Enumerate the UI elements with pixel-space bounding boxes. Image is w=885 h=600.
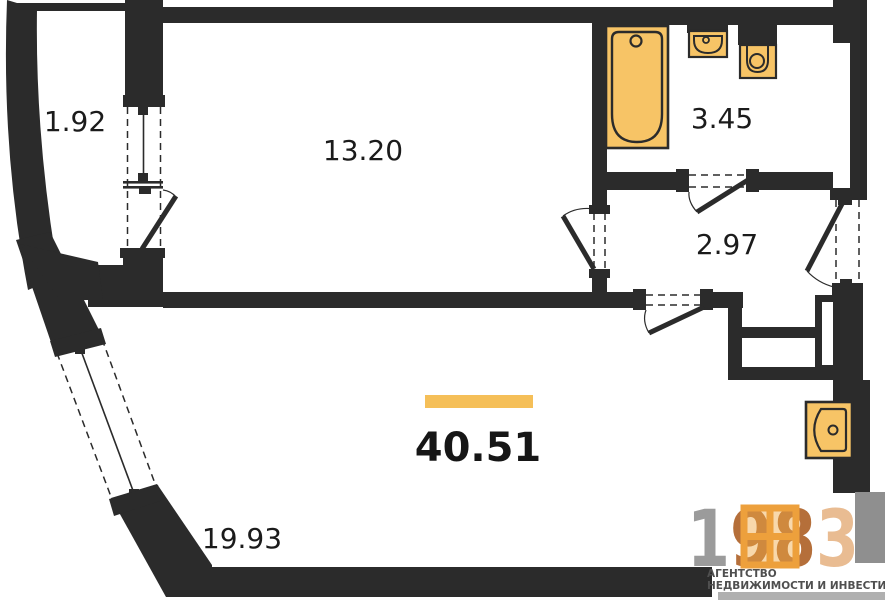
logo-window-icon — [744, 508, 796, 565]
bathroom-door — [689, 175, 748, 212]
balcony-window-door — [120, 107, 176, 258]
door-leaf — [142, 196, 176, 249]
wall-segment — [728, 367, 833, 380]
bathroom-area-label: 3.45 — [691, 102, 753, 135]
door-leaf — [697, 180, 748, 212]
wall-segment — [163, 7, 593, 23]
floor-plan-page: 1.92 13.20 3.45 2.97 19.93 40.51 1983 АГ… — [0, 0, 885, 600]
door-leaf — [563, 216, 594, 269]
wall-segment — [163, 292, 633, 308]
accent-bar — [425, 395, 533, 408]
wall-segment — [850, 25, 867, 190]
door-leaf — [807, 202, 843, 271]
logo-tagline-2: НЕДВИЖИМОСТИ И ИНВЕСТИЦИЙ — [707, 579, 885, 592]
bathroom-sink-icon — [687, 24, 728, 57]
wall-segment — [676, 169, 689, 192]
hallway-area-label: 2.97 — [696, 228, 758, 261]
wall-segment — [633, 289, 646, 310]
total-area: 40.51 — [415, 395, 542, 471]
door-swing-arc — [645, 310, 649, 333]
balcony-area-label: 1.92 — [44, 105, 106, 138]
total-area-label: 40.51 — [415, 425, 542, 471]
bathtub-icon — [606, 26, 668, 148]
wall-segment — [593, 172, 678, 190]
door-swing-arc — [807, 271, 834, 287]
agency-logo: 1983 АГЕНТСТВО НЕДВИЖИМОСТИ И ИНВЕСТИЦИЙ — [687, 492, 885, 600]
bedroom-area-label: 13.20 — [323, 134, 403, 167]
wall-segment — [840, 279, 852, 285]
living-room-area-label: 19.93 — [202, 522, 282, 555]
shaft-slot — [822, 302, 833, 365]
door-leaf — [649, 307, 704, 333]
wall-segment — [123, 95, 165, 107]
living-room-door — [645, 295, 704, 333]
wall-segment — [713, 292, 743, 308]
door-swing-arc — [689, 192, 697, 212]
wall-segment — [7, 3, 127, 11]
wall-segment — [125, 0, 163, 107]
floor-plan-drawing: 1.92 13.20 3.45 2.97 19.93 40.51 1983 АГ… — [0, 0, 885, 600]
entry-door — [807, 200, 859, 287]
wall-segment — [185, 567, 712, 597]
wall-segment — [589, 269, 610, 278]
kitchen-sink-icon — [806, 402, 852, 458]
logo-tagline-1: АГЕНТСТВО — [707, 568, 777, 580]
logo-gray-block — [855, 492, 885, 563]
bedroom-door — [563, 208, 605, 269]
logo-bottom-strip — [718, 592, 885, 600]
toilet-icon — [738, 23, 777, 78]
wall-segment — [593, 7, 833, 25]
wall-segment — [742, 327, 815, 338]
wall-segment — [833, 295, 863, 380]
wall-segment — [759, 172, 833, 190]
